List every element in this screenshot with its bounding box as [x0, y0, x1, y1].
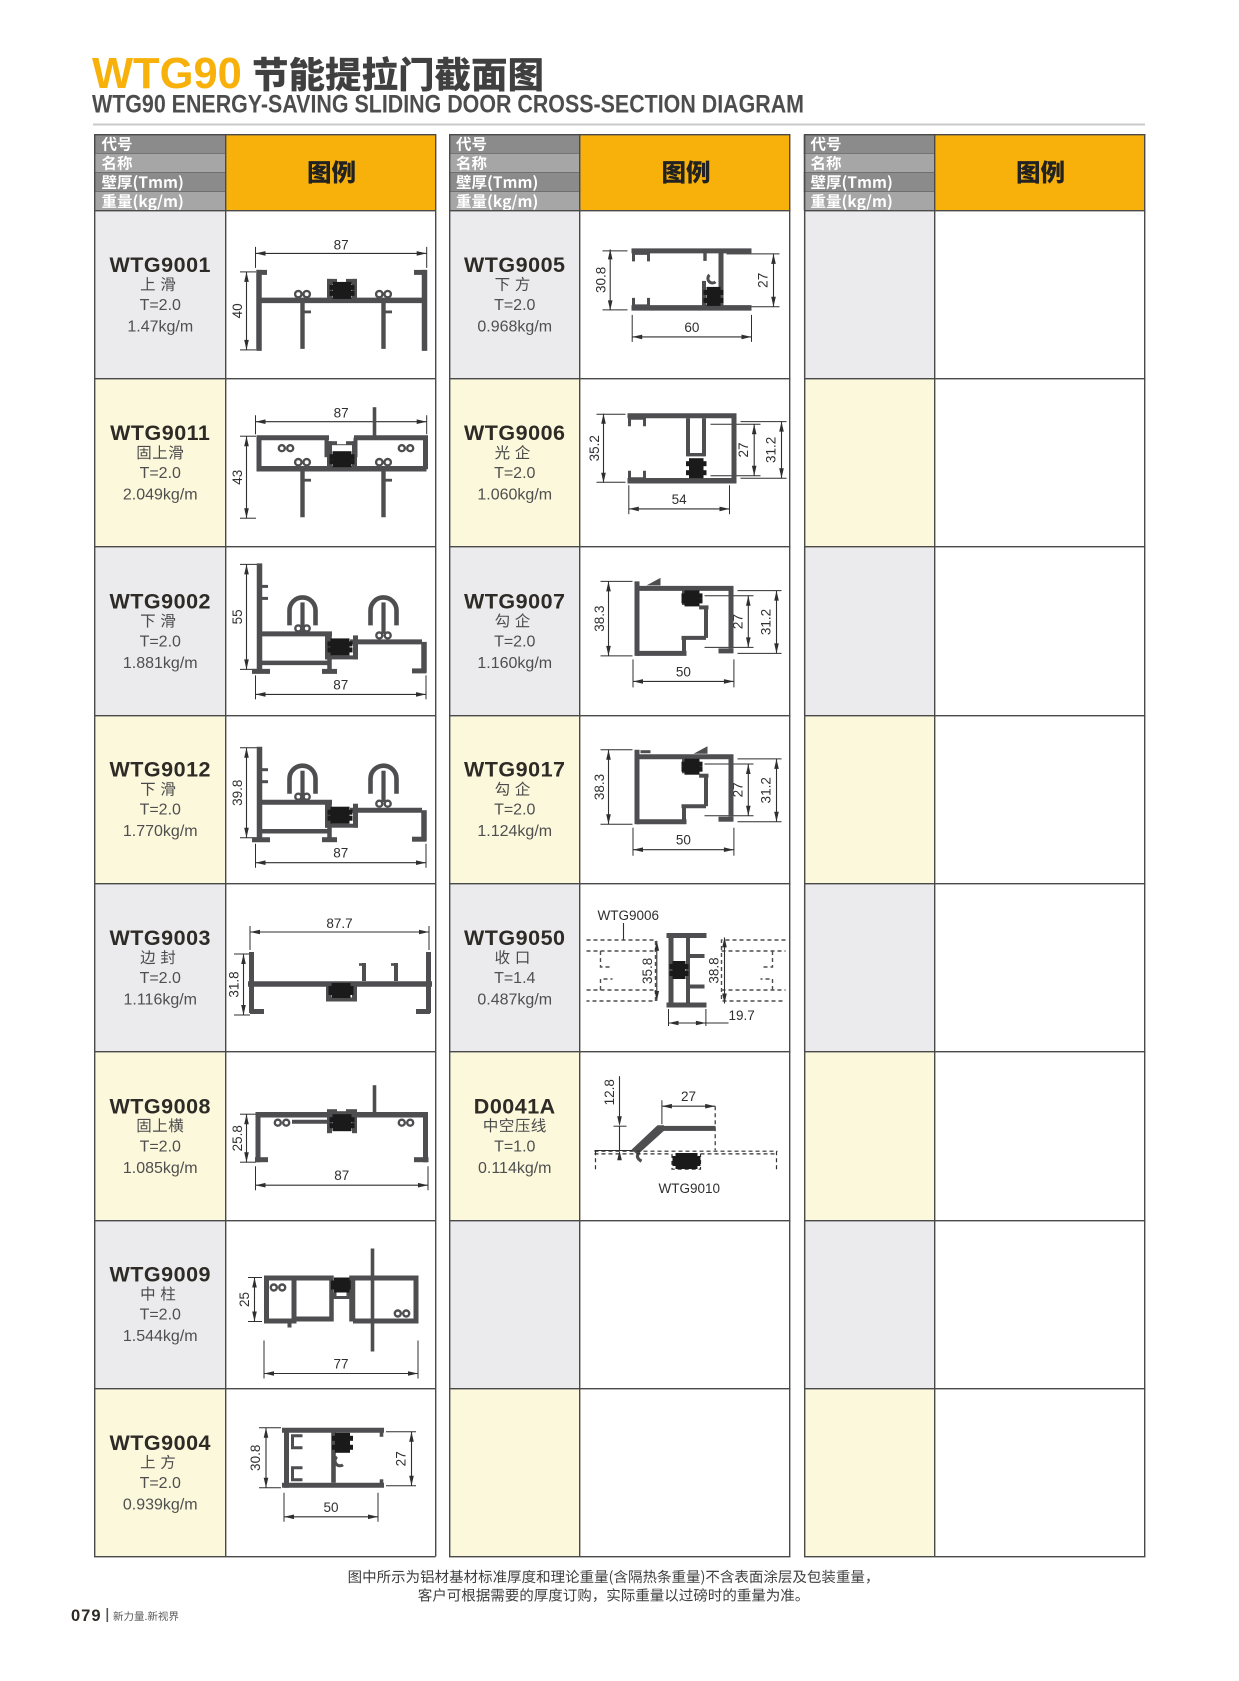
svg-text:1.47kg/m: 1.47kg/m — [127, 318, 193, 335]
svg-text:87.7: 87.7 — [326, 916, 352, 931]
svg-text:1.060kg/m: 1.060kg/m — [477, 487, 552, 504]
svg-text:WTG9009: WTG9009 — [110, 1263, 211, 1287]
svg-text:35.2: 35.2 — [587, 435, 602, 461]
svg-text:WTG9001: WTG9001 — [110, 253, 211, 277]
svg-text:WTG9006: WTG9006 — [464, 421, 565, 445]
svg-text:38.8: 38.8 — [707, 957, 722, 983]
svg-text:WTG9050: WTG9050 — [464, 926, 565, 950]
svg-text:54: 54 — [672, 492, 688, 507]
svg-text:WTG9017: WTG9017 — [464, 758, 565, 782]
svg-text:0.114kg/m: 0.114kg/m — [478, 1160, 552, 1177]
svg-text:0.939kg/m: 0.939kg/m — [123, 1496, 198, 1513]
svg-text:1.770kg/m: 1.770kg/m — [123, 823, 198, 840]
svg-text:31.8: 31.8 — [227, 971, 242, 997]
svg-text:39.8: 39.8 — [230, 780, 245, 806]
svg-text:WTG9008: WTG9008 — [110, 1094, 211, 1118]
svg-text:WTG9005: WTG9005 — [464, 253, 565, 277]
svg-text:T=1.4: T=1.4 — [494, 970, 535, 987]
svg-text:1.116kg/m: 1.116kg/m — [123, 991, 197, 1008]
svg-text:77: 77 — [333, 1357, 348, 1372]
svg-text:WTG9002: WTG9002 — [110, 589, 211, 613]
svg-text:1.160kg/m: 1.160kg/m — [477, 655, 552, 672]
svg-text:38.3: 38.3 — [592, 606, 607, 632]
svg-text:WTG9010: WTG9010 — [659, 1181, 721, 1196]
svg-text:87: 87 — [333, 846, 348, 861]
svg-text:25: 25 — [237, 1292, 252, 1307]
svg-text:T=2.0: T=2.0 — [140, 633, 181, 650]
svg-text:D0041A: D0041A — [474, 1094, 556, 1118]
svg-text:87: 87 — [334, 406, 349, 421]
svg-text:87: 87 — [334, 237, 349, 252]
svg-text:T=2.0: T=2.0 — [140, 1138, 181, 1155]
svg-text:2.049kg/m: 2.049kg/m — [123, 487, 198, 504]
svg-text:0.968kg/m: 0.968kg/m — [477, 318, 552, 335]
svg-text:1.124kg/m: 1.124kg/m — [477, 823, 552, 840]
svg-text:27: 27 — [756, 273, 771, 288]
svg-text:WTG9012: WTG9012 — [110, 758, 211, 782]
svg-text:T=2.0: T=2.0 — [140, 1307, 181, 1324]
svg-text:0.487kg/m: 0.487kg/m — [477, 991, 552, 1008]
svg-text:T=2.0: T=2.0 — [140, 970, 181, 987]
svg-text:55: 55 — [230, 609, 245, 624]
svg-text:27: 27 — [394, 1451, 409, 1466]
svg-text:T=2.0: T=2.0 — [494, 465, 535, 482]
svg-text:1.544kg/m: 1.544kg/m — [123, 1328, 198, 1345]
svg-text:27: 27 — [681, 1089, 696, 1104]
svg-text:T=2.0: T=2.0 — [494, 802, 535, 819]
svg-text:T=2.0: T=2.0 — [140, 297, 181, 314]
svg-text:31.2: 31.2 — [759, 777, 774, 803]
svg-text:50: 50 — [323, 1500, 338, 1515]
svg-text:T=2.0: T=2.0 — [494, 297, 535, 314]
svg-text:27: 27 — [736, 442, 751, 457]
svg-text:T=2.0: T=2.0 — [140, 465, 181, 482]
svg-text:19.7: 19.7 — [729, 1008, 755, 1023]
svg-text:WTG9003: WTG9003 — [110, 926, 211, 950]
svg-text:WTG9004: WTG9004 — [110, 1431, 211, 1455]
svg-text:40: 40 — [230, 303, 245, 318]
svg-text:T=1.0: T=1.0 — [494, 1138, 535, 1155]
svg-text:WTG90 ENERGY-SAVING SLIDING DO: WTG90 ENERGY-SAVING SLIDING DOOR CROSS-S… — [92, 91, 804, 119]
svg-text:35.8: 35.8 — [640, 958, 655, 984]
svg-text:38.3: 38.3 — [592, 774, 607, 800]
svg-text:25.8: 25.8 — [230, 1125, 245, 1151]
svg-text:50: 50 — [676, 833, 691, 848]
svg-text:T=2.0: T=2.0 — [494, 633, 535, 650]
svg-text:WTG9011: WTG9011 — [110, 421, 210, 445]
svg-text:WTG9007: WTG9007 — [464, 589, 565, 613]
svg-text:60: 60 — [684, 320, 699, 335]
svg-text:87: 87 — [334, 1168, 349, 1183]
svg-text:43: 43 — [230, 470, 245, 485]
svg-text:30.8: 30.8 — [248, 1445, 263, 1471]
svg-text:079: 079 — [71, 1607, 102, 1625]
svg-text:31.2: 31.2 — [764, 437, 779, 463]
svg-text:31.2: 31.2 — [759, 609, 774, 635]
svg-text:T=2.0: T=2.0 — [140, 1475, 181, 1492]
svg-text:WTG9006: WTG9006 — [598, 908, 660, 923]
svg-text:1.085kg/m: 1.085kg/m — [123, 1160, 198, 1177]
svg-text:1.881kg/m: 1.881kg/m — [123, 655, 198, 672]
svg-text:12.8: 12.8 — [602, 1079, 617, 1105]
svg-text:T=2.0: T=2.0 — [140, 802, 181, 819]
svg-text:30.8: 30.8 — [594, 267, 609, 293]
svg-text:87: 87 — [333, 677, 348, 692]
svg-text:50: 50 — [676, 664, 691, 679]
